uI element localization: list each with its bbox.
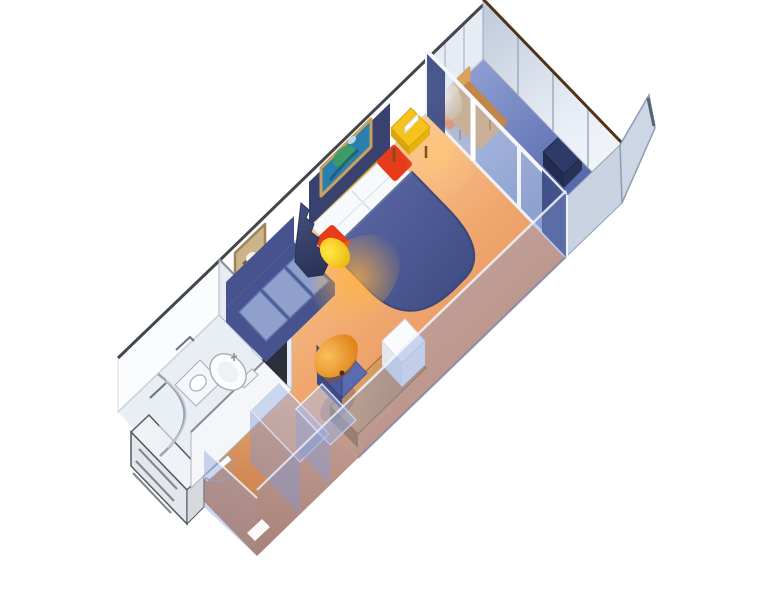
stateroom-3d-rendering: 3D cutaway rendering of a cruise ship ba… bbox=[0, 0, 758, 590]
ottoman-leg bbox=[340, 371, 345, 376]
stateroom-rendering-canvas: 3D cutaway rendering of a cruise ship ba… bbox=[0, 0, 758, 590]
